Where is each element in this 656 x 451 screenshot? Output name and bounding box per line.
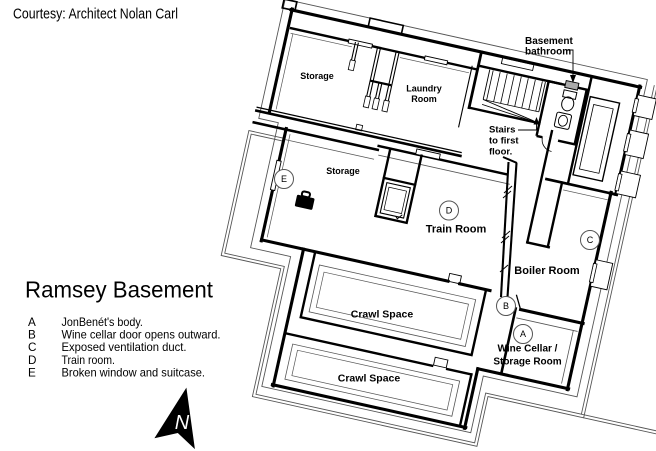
svg-text:Wine cellar door opens outward: Wine cellar door opens outward. (62, 328, 221, 341)
svg-text:Crawl Space: Crawl Space (351, 309, 414, 321)
svg-text:Laundry: Laundry (406, 84, 442, 94)
svg-text:A: A (28, 316, 36, 329)
svg-text:E: E (28, 366, 36, 379)
svg-text:Storage: Storage (326, 166, 360, 176)
svg-text:Broken window and suitcase.: Broken window and suitcase. (62, 366, 206, 379)
svg-text:Stairs: Stairs (489, 125, 515, 136)
svg-text:Exposed ventilation duct.: Exposed ventilation duct. (62, 341, 187, 354)
svg-text:B: B (28, 328, 36, 341)
svg-text:A: A (520, 329, 526, 339)
svg-text:B: B (503, 301, 509, 311)
svg-text:bathroom: bathroom (525, 47, 571, 58)
svg-text:C: C (587, 235, 594, 245)
svg-text:Train room.: Train room. (62, 354, 116, 367)
svg-text:N: N (175, 412, 190, 434)
svg-text:Storage Room: Storage Room (493, 357, 561, 368)
svg-text:Ramsey Basement: Ramsey Basement (25, 277, 213, 303)
svg-text:D: D (446, 206, 453, 216)
svg-text:Basement: Basement (525, 36, 573, 47)
svg-text:Room: Room (411, 94, 437, 104)
svg-text:Wine Cellar /: Wine Cellar / (498, 344, 558, 355)
svg-text:to first: to first (489, 136, 519, 147)
svg-text:JonBenét's body.: JonBenét's body. (62, 316, 143, 329)
svg-text:floor.: floor. (489, 147, 512, 158)
svg-text:D: D (28, 354, 36, 367)
svg-text:C: C (28, 341, 36, 354)
svg-text:Boiler Room: Boiler Room (514, 265, 580, 277)
svg-text:Train Room: Train Room (426, 224, 487, 236)
svg-text:Courtesy: Architect Nolan Carl: Courtesy: Architect Nolan Carl (13, 7, 178, 23)
svg-text:E: E (281, 174, 287, 184)
svg-text:Crawl Space: Crawl Space (338, 373, 401, 385)
svg-text:Storage: Storage (300, 71, 334, 81)
